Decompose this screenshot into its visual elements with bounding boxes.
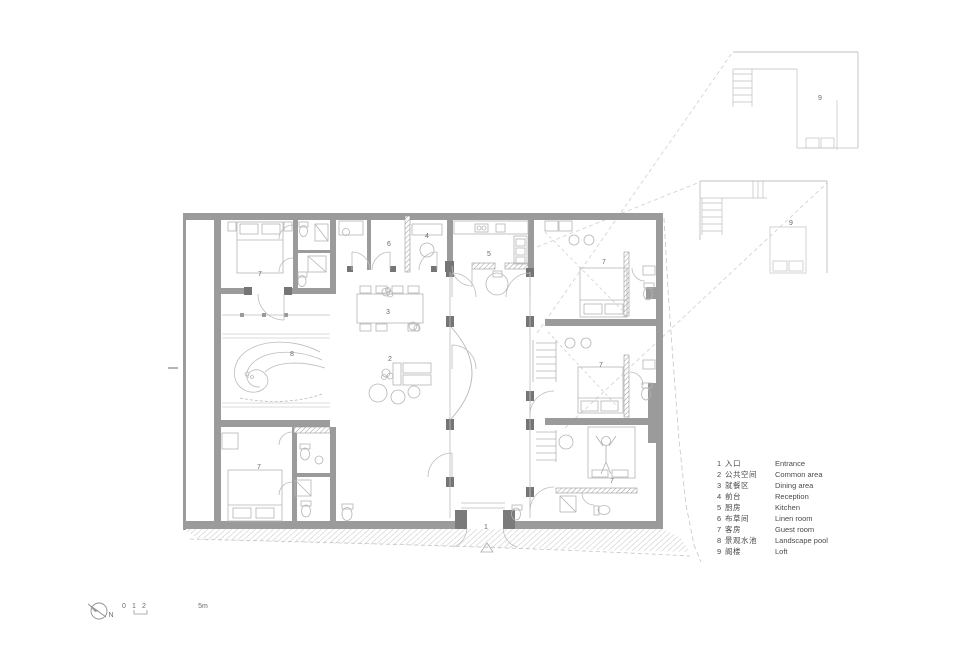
legend-item-linen-room: 6 布草间 Linen room bbox=[717, 513, 887, 524]
walls bbox=[183, 213, 663, 530]
legend-item-kitchen: 5 厨房 Kitchen bbox=[717, 502, 887, 513]
legend-item-entrance: 1 入口 Entrance bbox=[717, 458, 887, 469]
curved-partition bbox=[451, 327, 472, 419]
columns-and-jambs bbox=[244, 261, 534, 529]
legend-item-landscape-pool: 8 景观水池 Landscape pool bbox=[717, 535, 887, 546]
legend-zh-label: 公共空间 bbox=[725, 469, 775, 480]
furniture bbox=[222, 221, 655, 521]
legend-en-label: Guest room bbox=[775, 524, 887, 535]
legend-num: 9 bbox=[717, 546, 725, 557]
legend-en-label: Common area bbox=[775, 469, 887, 480]
legend-item-dining-area: 3 就餐区 Dining area bbox=[717, 480, 887, 491]
legend-num: 5 bbox=[717, 502, 725, 513]
legend-num: 3 bbox=[717, 480, 725, 491]
legend-en-label: Landscape pool bbox=[775, 535, 887, 546]
loft-plan-lower bbox=[700, 181, 827, 273]
north-label: N bbox=[108, 612, 113, 619]
room-label-dining-area: 3 bbox=[386, 309, 390, 316]
legend-num: 2 bbox=[717, 469, 725, 480]
scale-tick-2: 2 bbox=[142, 603, 146, 610]
legend-num: 6 bbox=[717, 513, 725, 524]
glazing-lines bbox=[222, 272, 530, 518]
hatched-walls bbox=[294, 216, 637, 493]
room-label-guest-room-bl: 7 bbox=[257, 464, 261, 471]
room-label-reception: 4 bbox=[425, 233, 429, 240]
legend-num: 1 bbox=[717, 458, 725, 469]
legend-en-label: Entrance bbox=[775, 458, 887, 469]
scale-unit-label: 5m bbox=[198, 603, 208, 610]
legend-en-label: Linen room bbox=[775, 513, 887, 524]
loft-plan-upper bbox=[733, 52, 858, 150]
legend-en-label: Kitchen bbox=[775, 502, 887, 513]
legend-en-label: Dining area bbox=[775, 480, 887, 491]
room-label-guest-room-br: 7 bbox=[610, 478, 614, 485]
legend-item-loft: 9 阁楼 Loft bbox=[717, 546, 887, 557]
north-arrow-icon: N bbox=[88, 603, 114, 619]
legend-num: 4 bbox=[717, 491, 725, 502]
legend-zh-label: 前台 bbox=[725, 491, 775, 502]
room-label-loft-upper: 9 bbox=[818, 95, 822, 102]
legend-item-guest-room: 7 客房 Guest room bbox=[717, 524, 887, 535]
legend-zh-label: 厨房 bbox=[725, 502, 775, 513]
room-label-entrance: 1 bbox=[484, 524, 488, 531]
page: { "colors": { "wall": "#9b9b9b", "thin_l… bbox=[0, 0, 960, 655]
legend-zh-label: 阁楼 bbox=[725, 546, 775, 557]
room-label-kitchen: 5 bbox=[487, 251, 491, 258]
scale-bar: 0 1 2 5m bbox=[122, 603, 208, 614]
scale-tick-0: 0 bbox=[122, 603, 126, 610]
legend-item-reception: 4 前台 Reception bbox=[717, 491, 887, 502]
room-label-landscape-pool: 8 bbox=[290, 351, 294, 358]
legend-num: 7 bbox=[717, 524, 725, 535]
room-label-guest-room-mr: 7 bbox=[599, 362, 603, 369]
room-label-guest-room-tl: 7 bbox=[258, 271, 262, 278]
landscape-pool bbox=[222, 334, 330, 407]
legend-zh-label: 入口 bbox=[725, 458, 775, 469]
legend-en-label: Loft bbox=[775, 546, 887, 557]
room-label-common-area: 2 bbox=[388, 356, 392, 363]
legend-item-common-area: 2 公共空间 Common area bbox=[717, 469, 887, 480]
legend-en-label: Reception bbox=[775, 491, 887, 502]
site-boundary-line bbox=[664, 218, 701, 562]
legend-zh-label: 就餐区 bbox=[725, 480, 775, 491]
legend: 1 入口 Entrance 2 公共空间 Common area 3 就餐区 D… bbox=[717, 458, 887, 557]
legend-zh-label: 景观水池 bbox=[725, 535, 775, 546]
room-label-loft-lower: 9 bbox=[789, 220, 793, 227]
loft-projection-lines bbox=[537, 53, 827, 428]
legend-zh-label: 布草间 bbox=[725, 513, 775, 524]
person-figure bbox=[596, 436, 616, 474]
legend-num: 8 bbox=[717, 535, 725, 546]
room-label-guest-room-tr: 7 bbox=[602, 259, 606, 266]
legend-zh-label: 客房 bbox=[725, 524, 775, 535]
room-label-linen-room: 6 bbox=[387, 241, 391, 248]
scale-tick-1: 1 bbox=[132, 603, 136, 610]
ground-hatch bbox=[183, 529, 690, 556]
